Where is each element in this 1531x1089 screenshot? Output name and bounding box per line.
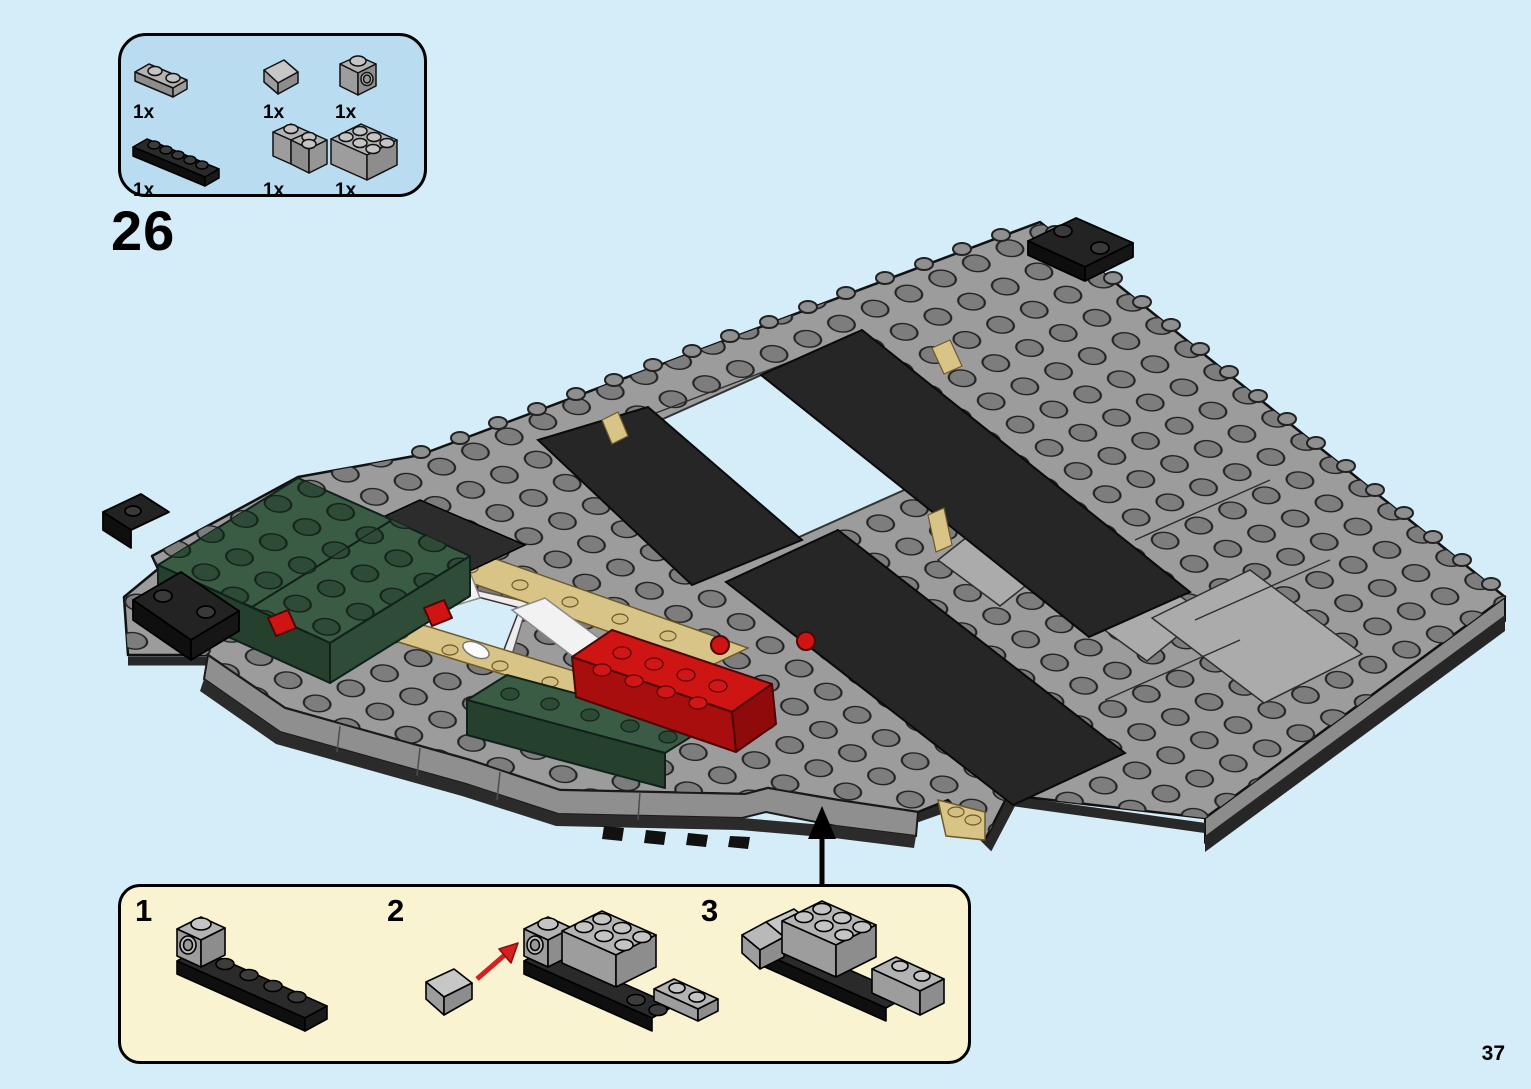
smooth-tile-areas (938, 514, 1362, 703)
plate-seams (648, 335, 1330, 710)
black-window-panels (538, 330, 1190, 805)
gray-1x1-brick-side-stud-icon (340, 56, 376, 95)
main-top-plate (124, 222, 1505, 840)
gray-2x2-corner-brick-icon (273, 124, 327, 173)
step-number: 26 (111, 198, 175, 263)
callout-arrow (808, 806, 836, 884)
instruction-page: { "page": { "background_color": "#d5ecf9… (0, 0, 1531, 1089)
green-brick-cluster (158, 478, 705, 788)
gray-1x2-plate-icon (135, 64, 187, 97)
substep-number: 3 (701, 893, 718, 929)
gray-slope-brick-icon (264, 60, 298, 94)
courtyard-openings (372, 333, 998, 668)
substep-number: 2 (387, 893, 404, 929)
substep1-assembly (177, 917, 327, 1031)
black-2x2-plate-top (1028, 218, 1133, 281)
page-number: 37 (1482, 1042, 1505, 1066)
parts-callout-box: 1x 1x 1x 1x 1x 1x (118, 33, 427, 197)
part-qty: 1x (263, 180, 284, 202)
substep2-assembly (426, 911, 718, 1031)
black-corner-plates (103, 494, 239, 660)
black-studded-patch (322, 500, 525, 592)
tan-sliver-tiles (602, 340, 962, 552)
substeps-callout-box: 1 2 3 (118, 884, 971, 1064)
edge-stud-row (412, 226, 1500, 590)
part-qty: 1x (133, 102, 154, 124)
substep3-assembly (742, 901, 944, 1021)
white-tiles (262, 520, 612, 662)
tan-hinge (938, 800, 985, 840)
front-facade-wall (200, 655, 918, 849)
part-qty: 1x (335, 180, 356, 202)
substep-number: 1 (135, 893, 152, 929)
white-cylinder-pieces (375, 591, 492, 662)
red-brick-block (268, 600, 815, 752)
plate-side-faces (128, 597, 1505, 852)
interior-details (252, 500, 748, 728)
wall-teeth (602, 826, 750, 849)
substep-drawings (121, 887, 962, 1055)
part-qty: 1x (335, 102, 356, 124)
part-qty: 1x (263, 102, 284, 124)
black-1x6-plate-icon (133, 139, 219, 186)
gray-2x3-brick-icon (331, 124, 397, 180)
